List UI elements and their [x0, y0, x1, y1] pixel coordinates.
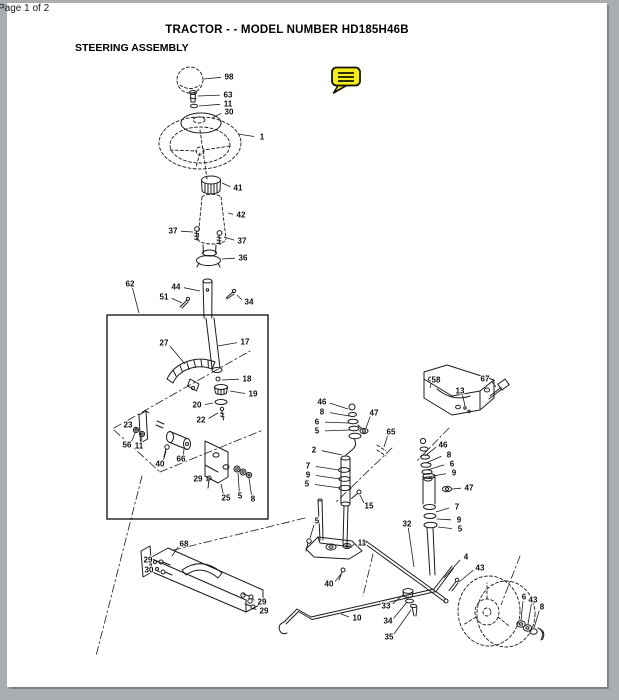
callout-leader-8 — [426, 456, 441, 463]
part-callout-29: 29 — [260, 607, 269, 616]
part-callout-30: 30 — [225, 108, 234, 117]
callout-leader-65 — [384, 436, 388, 447]
part-callout-7: 7 — [306, 462, 311, 471]
part-callout-30: 30 — [145, 566, 154, 575]
callout-leader-1 — [238, 134, 254, 137]
part-callout-67: 67 — [481, 375, 490, 384]
dashed-outline-parts — [159, 67, 535, 647]
part-callout-29: 29 — [258, 598, 267, 607]
part-callout-25: 25 — [222, 494, 231, 503]
callout-leader-46 — [330, 403, 348, 409]
callout-leader-9 — [316, 476, 340, 480]
part-callout-47: 47 — [370, 409, 379, 418]
steering-assembly-exploded-diagram: 9863113014142373736624451342717181920222… — [0, 0, 619, 700]
part-callout-9: 9 — [306, 471, 311, 480]
callout-leader-41 — [222, 183, 230, 187]
part-callout-6: 6 — [315, 418, 320, 427]
part-callout-66: 66 — [177, 455, 186, 464]
part-callout-8: 8 — [320, 408, 325, 417]
part-callout-44: 44 — [172, 283, 181, 292]
callout-leader-35 — [394, 610, 411, 634]
callout-leader-37 — [181, 231, 193, 232]
part-callout-27: 27 — [160, 339, 169, 348]
part-callout-20: 20 — [193, 401, 202, 410]
part-callout-98: 98 — [225, 73, 234, 82]
callout-leader-6 — [521, 601, 523, 620]
part-callout-17: 17 — [241, 338, 250, 347]
callout-leader-56 — [131, 433, 135, 442]
callout-leader-63 — [198, 95, 220, 96]
callout-leader-5 — [325, 430, 350, 431]
part-callout-29: 29 — [194, 475, 203, 484]
part-callout-56: 56 — [123, 441, 132, 450]
solid-outline-parts — [133, 91, 543, 641]
part-callout-18: 18 — [243, 375, 252, 384]
part-callout-51: 51 — [160, 293, 169, 302]
callout-leader-34 — [237, 295, 242, 300]
part-callout-7: 7 — [455, 503, 460, 512]
callout-leader-19 — [230, 391, 245, 394]
part-callout-33: 33 — [382, 602, 391, 611]
part-callout-46: 46 — [318, 398, 327, 407]
callout-leader-51 — [172, 298, 182, 303]
part-callout-8: 8 — [540, 603, 545, 612]
part-callout-2: 2 — [312, 446, 317, 455]
callout-leader-5 — [438, 527, 452, 529]
part-callout-13: 13 — [456, 387, 465, 396]
part-callout-19: 19 — [249, 390, 258, 399]
part-callout-68: 68 — [180, 540, 189, 549]
part-callout-37: 37 — [238, 237, 247, 246]
callout-leader-8 — [249, 478, 252, 495]
callout-leader-98 — [204, 77, 221, 79]
part-callout-6: 6 — [450, 460, 455, 469]
callout-leader-43 — [528, 604, 531, 624]
callout-leader-15 — [360, 495, 364, 503]
part-callout-5: 5 — [315, 517, 320, 526]
callout-leader-11 — [199, 104, 220, 106]
part-callout-9: 9 — [457, 516, 462, 525]
part-callout-5: 5 — [305, 480, 310, 489]
part-callout-43: 43 — [529, 596, 538, 605]
callout-leader-9 — [437, 519, 451, 520]
part-callout-42: 42 — [237, 211, 246, 220]
callout-leader-22 — [208, 413, 218, 419]
callout-leader-42 — [228, 213, 233, 214]
part-callout-11: 11 — [358, 539, 367, 548]
callout-leader-27 — [170, 346, 185, 364]
part-callout-46: 46 — [439, 441, 448, 450]
callout-leader-7 — [316, 467, 339, 471]
part-callout-8: 8 — [447, 451, 452, 460]
callout-leader-6 — [427, 465, 444, 470]
callout-leader-10 — [341, 614, 349, 617]
callout-leader-8 — [330, 413, 349, 416]
callout-leader-47 — [452, 488, 461, 489]
callout-leader-20 — [205, 403, 213, 405]
callout-leader-68 — [172, 547, 178, 556]
part-callout-8: 8 — [251, 495, 256, 504]
part-callout-11: 11 — [135, 442, 144, 451]
callout-leader-2 — [322, 451, 342, 455]
callout-leader-44 — [184, 288, 200, 291]
callout-leader-4 — [444, 560, 460, 578]
part-callout-58: 58 — [432, 376, 441, 385]
part-callout-4: 4 — [464, 553, 469, 562]
callout-leader-32 — [408, 528, 414, 567]
callout-leader-62 — [132, 288, 139, 313]
part-callout-35: 35 — [385, 633, 394, 642]
part-callout-6: 6 — [522, 593, 527, 602]
callout-leader-13 — [463, 395, 466, 406]
callout-leader-5 — [310, 525, 314, 538]
part-callout-41: 41 — [234, 184, 243, 193]
callout-leader-36 — [222, 258, 235, 259]
part-callout-5: 5 — [238, 492, 243, 501]
document-viewport: Page 1 of 2 TRACTOR - - MODEL NUMBER HD1… — [0, 0, 619, 700]
part-callout-36: 36 — [239, 254, 248, 263]
sticky-note-annotation-icon[interactable] — [330, 66, 366, 98]
part-callout-63: 63 — [224, 91, 233, 100]
part-callout-5: 5 — [458, 525, 463, 534]
part-callout-29: 29 — [144, 556, 153, 565]
part-callout-37: 37 — [169, 227, 178, 236]
part-callout-47: 47 — [465, 484, 474, 493]
callout-leader-18 — [222, 379, 239, 380]
part-callout-40: 40 — [325, 580, 334, 589]
part-callout-1: 1 — [260, 133, 265, 142]
part-callout-40: 40 — [156, 460, 165, 469]
part-callout-10: 10 — [353, 614, 362, 623]
part-callout-34: 34 — [384, 617, 393, 626]
part-callout-34: 34 — [245, 298, 254, 307]
part-callout-9: 9 — [452, 469, 457, 478]
part-callout-62: 62 — [126, 280, 135, 289]
part-callout-23: 23 — [124, 421, 133, 430]
callout-leader-43 — [459, 570, 473, 582]
callout-leader-17 — [218, 343, 237, 346]
callout-leader-5 — [238, 473, 239, 492]
callout-leader-30 — [157, 571, 160, 572]
callout-leader-5 — [315, 485, 340, 489]
callout-leader-6 — [325, 422, 349, 423]
part-callout-5: 5 — [315, 427, 320, 436]
part-callout-22: 22 — [197, 416, 206, 425]
part-callout-15: 15 — [365, 502, 374, 511]
callout-leader-34 — [394, 602, 407, 618]
callout-leader-11 — [352, 544, 354, 546]
callout-leader-47 — [366, 417, 370, 429]
part-callout-65: 65 — [387, 428, 396, 437]
part-callout-32: 32 — [403, 520, 412, 529]
part-callout-43: 43 — [476, 564, 485, 573]
callout-leader-7 — [436, 508, 449, 512]
